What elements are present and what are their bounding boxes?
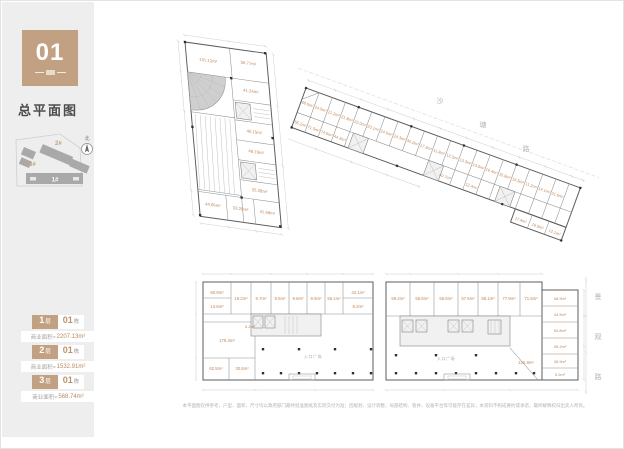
room-area-label: 9.9m² [311,296,323,301]
page-title: 总平面图 [2,100,94,119]
room-area-label: 30.2m² [406,138,420,147]
structural-columns [395,354,535,374]
floor2-selector[interactable]: 2 层 01 栋 [32,345,84,359]
room-area-label: 35.28m² [252,187,269,194]
room-area-label: 131.12m² [199,57,218,65]
sidebar: 01 总平面图 1# 2# 3# [2,2,94,437]
room-area-label: 77.9m² [502,296,516,301]
building-button[interactable]: 01 栋 [58,375,84,389]
room-area-label: 41.68m² [259,209,276,216]
elevator-stair-core [251,314,321,336]
room-area-label: 41.24m² [243,88,260,95]
area-value: 568.74m² [58,394,83,400]
minimap-label-1: 1# [52,178,59,184]
site-boundary-line [298,68,599,177]
room-area-label: 21.8m² [340,114,354,123]
road-name-char: 塘 [480,120,487,129]
road-dimension-line [585,277,587,394]
room-area-label: 30.6m² [235,366,249,371]
floor-number: 1 [39,315,44,325]
floor-button[interactable]: 1 层 [32,315,58,329]
area-value: 2207.13m² [57,334,86,340]
section-number: 01 [36,41,65,65]
room-area-label: 13.6m² [210,304,224,309]
floor3-selector[interactable]: 3 层 01 栋 [32,375,84,389]
room-area-label: 8.2m² [353,304,365,309]
floor-plan-podium-right: 59.2m² 56.6m² 56.6m² 57.5m² 58.1m² 77.9m… [380,270,590,402]
main-entrance [289,374,315,380]
minimap-label-2: 2# [55,141,62,147]
floor-unit: 层 [45,347,51,355]
room-area-label: 45.9m² [554,359,567,364]
road-name-char: 景 [595,293,602,301]
floor-unit: 层 [45,377,51,385]
room-area-label: 9.7m² [256,296,268,301]
main-entrance [444,374,470,380]
room-area-label: 74.5m² [320,129,334,138]
building-number: 01 [63,315,73,325]
room-area-label: 23.1m² [367,123,381,132]
north-label: 北 [84,135,89,142]
floor-button[interactable]: 2 层 [32,345,58,359]
building-unit: 栋 [74,317,80,325]
open-area-label: 入口广场 [437,355,455,361]
room-area-label: 126.8m² [518,360,534,365]
room-area-label: 56.6m² [415,296,429,301]
plan2-outline [292,88,581,227]
room-area-label: 59.2m² [391,296,405,301]
room-area-label: 56.1m² [327,296,341,301]
room-area-label: 16.5m² [531,222,545,231]
ramp-fan-hatch [188,72,229,115]
room-area-label: 16.5m² [511,176,525,185]
building-button[interactable]: 01 栋 [58,345,84,359]
plan4-annex-outline [542,290,578,380]
floor-plan-long-block: 68.5m² 24.5m² 21.2m² 21.8m² 22.0m² 23.1m… [288,38,618,248]
room-area-label: 19.2m² [234,296,248,301]
room-area-label: 56.77m² [240,60,257,67]
plan1-outline [185,42,281,228]
elevator-stair-core [400,316,510,346]
room-area-label: 11.2m² [525,181,539,190]
room-area-label: 58.1m² [481,296,495,301]
area-prefix: 商业面积≈ [32,393,57,401]
room-area-label: 17.3m² [419,143,433,152]
floor-plan-podium-left: 60.9m² 13.6m² 19.2m² 9.7m² 9.5m² 9.6m² 9… [193,270,388,402]
room-area-label: 68.5m² [301,100,315,109]
room-area-label: 11.8m² [433,147,447,156]
room-area-label: 14.1m² [538,186,552,195]
room-area-label: 21.2m² [327,109,341,118]
road-name-char: 路 [595,372,602,381]
room-area-label: 62.5m² [209,366,223,371]
room-area-label: 12.4m² [465,182,479,191]
room-area-label: 13.3m² [446,152,460,161]
room-area-label: 54.8m² [554,328,567,333]
room-area-label: 179.3m² [219,338,235,343]
entrance-mark [73,177,79,181]
legend-row-floor1: 1 层 01 栋 商业面积≈ 2207.13m² [20,315,96,342]
room-area-label: 15.8m² [498,171,512,180]
open-area-label: 入口广场 [304,353,322,359]
road-label-right: 景 观 路 [578,272,622,402]
room-area-label: 13.3m² [459,157,473,166]
room-area-label: 42.1m² [351,290,365,295]
room-area-label: 44.06m² [205,201,222,208]
room-area-label: 5.2m² [245,324,256,329]
room-area-label: 24.5m² [314,104,328,113]
room-area-label: 57.5m² [461,296,475,301]
area-readout: 商业面积≈ 1532.91m² [21,361,95,372]
room-area-label: 45.2m² [554,344,567,349]
room-area-label: 24.3m² [393,133,407,142]
floor-button[interactable]: 3 层 [32,375,58,389]
legend-row-floor3: 3 层 01 栋 商业面积≈ 568.74m² [20,375,96,402]
room-area-label: 44.3m² [333,134,347,143]
building-unit: 栋 [74,377,80,385]
room-area-label: 55.2m² [294,119,308,128]
building-unit: 栋 [74,347,80,355]
building-number: 01 [63,375,73,385]
site-minimap: 1# 2# 3# 北 [10,130,96,194]
minimap-building-1-shape: 1# [26,173,83,184]
room-area-label: 33.28m² [233,205,250,212]
room-area-label: 60.9m² [210,290,224,295]
road-name-char: 沙 [437,97,444,105]
room-area-label: 9.5m² [275,296,287,301]
room-area-label: 9.6m² [293,296,305,301]
floor-legend: 1 层 01 栋 商业面积≈ 2207.13m² 2 层 01 [20,315,96,405]
floor1-selector[interactable]: 1 层 01 栋 [32,315,84,329]
building-button[interactable]: 01 栋 [58,315,84,329]
area-prefix: 商业面积≈ [31,363,56,371]
room-area-label: 22.0m² [354,119,368,128]
area-value: 1532.91m² [57,364,86,370]
room-area-label: 24.6m² [380,128,394,137]
floor-number: 2 [39,345,44,355]
entrance-mark [30,177,36,181]
minimap-label-3: 3# [29,162,36,168]
building-number: 01 [63,345,73,355]
floor-unit: 层 [45,317,51,325]
plan2-room-labels-top: 68.5m² 24.5m² 21.2m² 21.8m² 22.0m² 23.1m… [301,100,512,181]
room-area-label: 9.2m² [555,372,566,377]
floor-number: 3 [39,375,44,385]
room-area-label: 44.5m² [554,312,567,317]
room-area-label: 71.5m² [307,124,321,133]
room-area-label: 48.9m² [554,296,567,301]
room-area-label: 71.5m² [524,296,538,301]
room-area-label: 56.6m² [439,296,453,301]
disclaimer-text: 本平面图仅供参考，户型、面积、尺寸均以政府部门最终批准图纸及实际交付为准；因规划… [160,403,610,409]
room-area-label: 13.5m² [472,162,486,171]
badge-motif-icon [35,70,66,75]
room-area-label: 12.1m² [548,228,562,237]
room-area-label: 17.4m² [514,215,528,224]
section-number-badge: 01 [22,30,78,86]
plan1-partitions [185,42,281,228]
room-area-label: 16.4m² [485,167,499,176]
room-area-label: 40.15m² [246,128,263,135]
area-readout: 商业面积≈ 2207.13m² [21,331,95,342]
room-area-label: 48.19m² [248,148,265,155]
ramp-lane-lines [193,114,236,195]
room-area-label: 21.6m² [551,191,565,200]
road-name-char: 观 [595,333,602,341]
north-compass-icon: 北 [82,135,93,155]
area-prefix: 商业面积≈ [31,333,56,341]
legend-row-floor2: 2 层 01 栋 商业面积≈ 1532.91m² [20,345,96,372]
road-label-top: 沙 塘 路 [437,97,530,153]
structural-columns [262,348,372,374]
room-area-label: 40.7m² [438,172,452,181]
road-name-char: 路 [523,144,530,153]
area-readout: 商业面积≈ 568.74m² [21,391,95,402]
